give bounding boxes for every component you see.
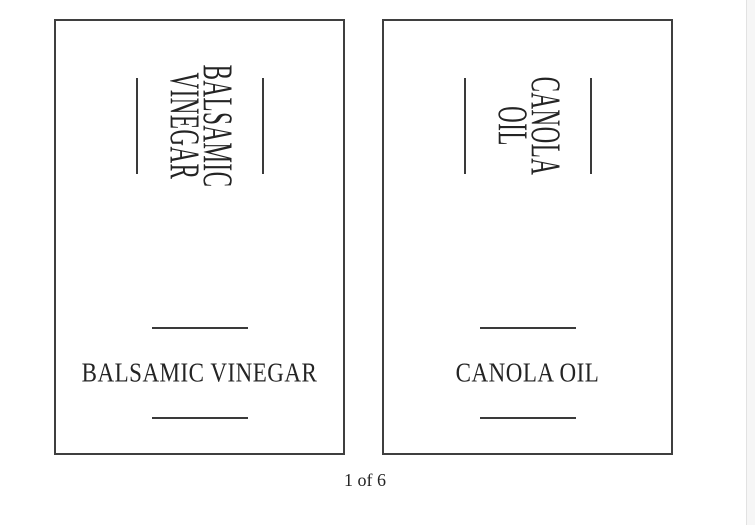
page-indicator: 1 of 6: [0, 469, 730, 491]
horizontal-label-block: CANOLA OIL: [384, 327, 671, 419]
horizontal-label-block: BALSAMIC VINEGAR: [56, 327, 343, 419]
horizontal-label-text: BALSAMIC VINEGAR: [82, 356, 318, 389]
label-card-balsamic-vinegar: BALSAMIC VINEGAR BALSAMIC VINEGAR: [54, 19, 345, 455]
vertical-label-block: CANOLA OIL: [464, 51, 592, 201]
divider-line: [480, 327, 576, 329]
label-card-canola-oil: CANOLA OIL CANOLA OIL: [382, 19, 673, 455]
divider-line: [262, 78, 264, 174]
divider-line: [480, 417, 576, 419]
document-page: BALSAMIC VINEGAR BALSAMIC VINEGAR CANOLA…: [0, 0, 755, 525]
vertical-label-text: BALSAMIC VINEGAR: [166, 65, 233, 188]
divider-line: [152, 327, 248, 329]
vertical-label-text: CANOLA OIL: [494, 77, 561, 176]
divider-line: [464, 78, 466, 174]
horizontal-label-text: CANOLA OIL: [456, 356, 600, 389]
scrollbar-track[interactable]: [746, 0, 755, 525]
divider-line: [590, 78, 592, 174]
divider-line: [136, 78, 138, 174]
divider-line: [152, 417, 248, 419]
vertical-label-block: BALSAMIC VINEGAR: [136, 51, 264, 201]
vertical-label-line2: VINEGAR: [166, 65, 199, 188]
